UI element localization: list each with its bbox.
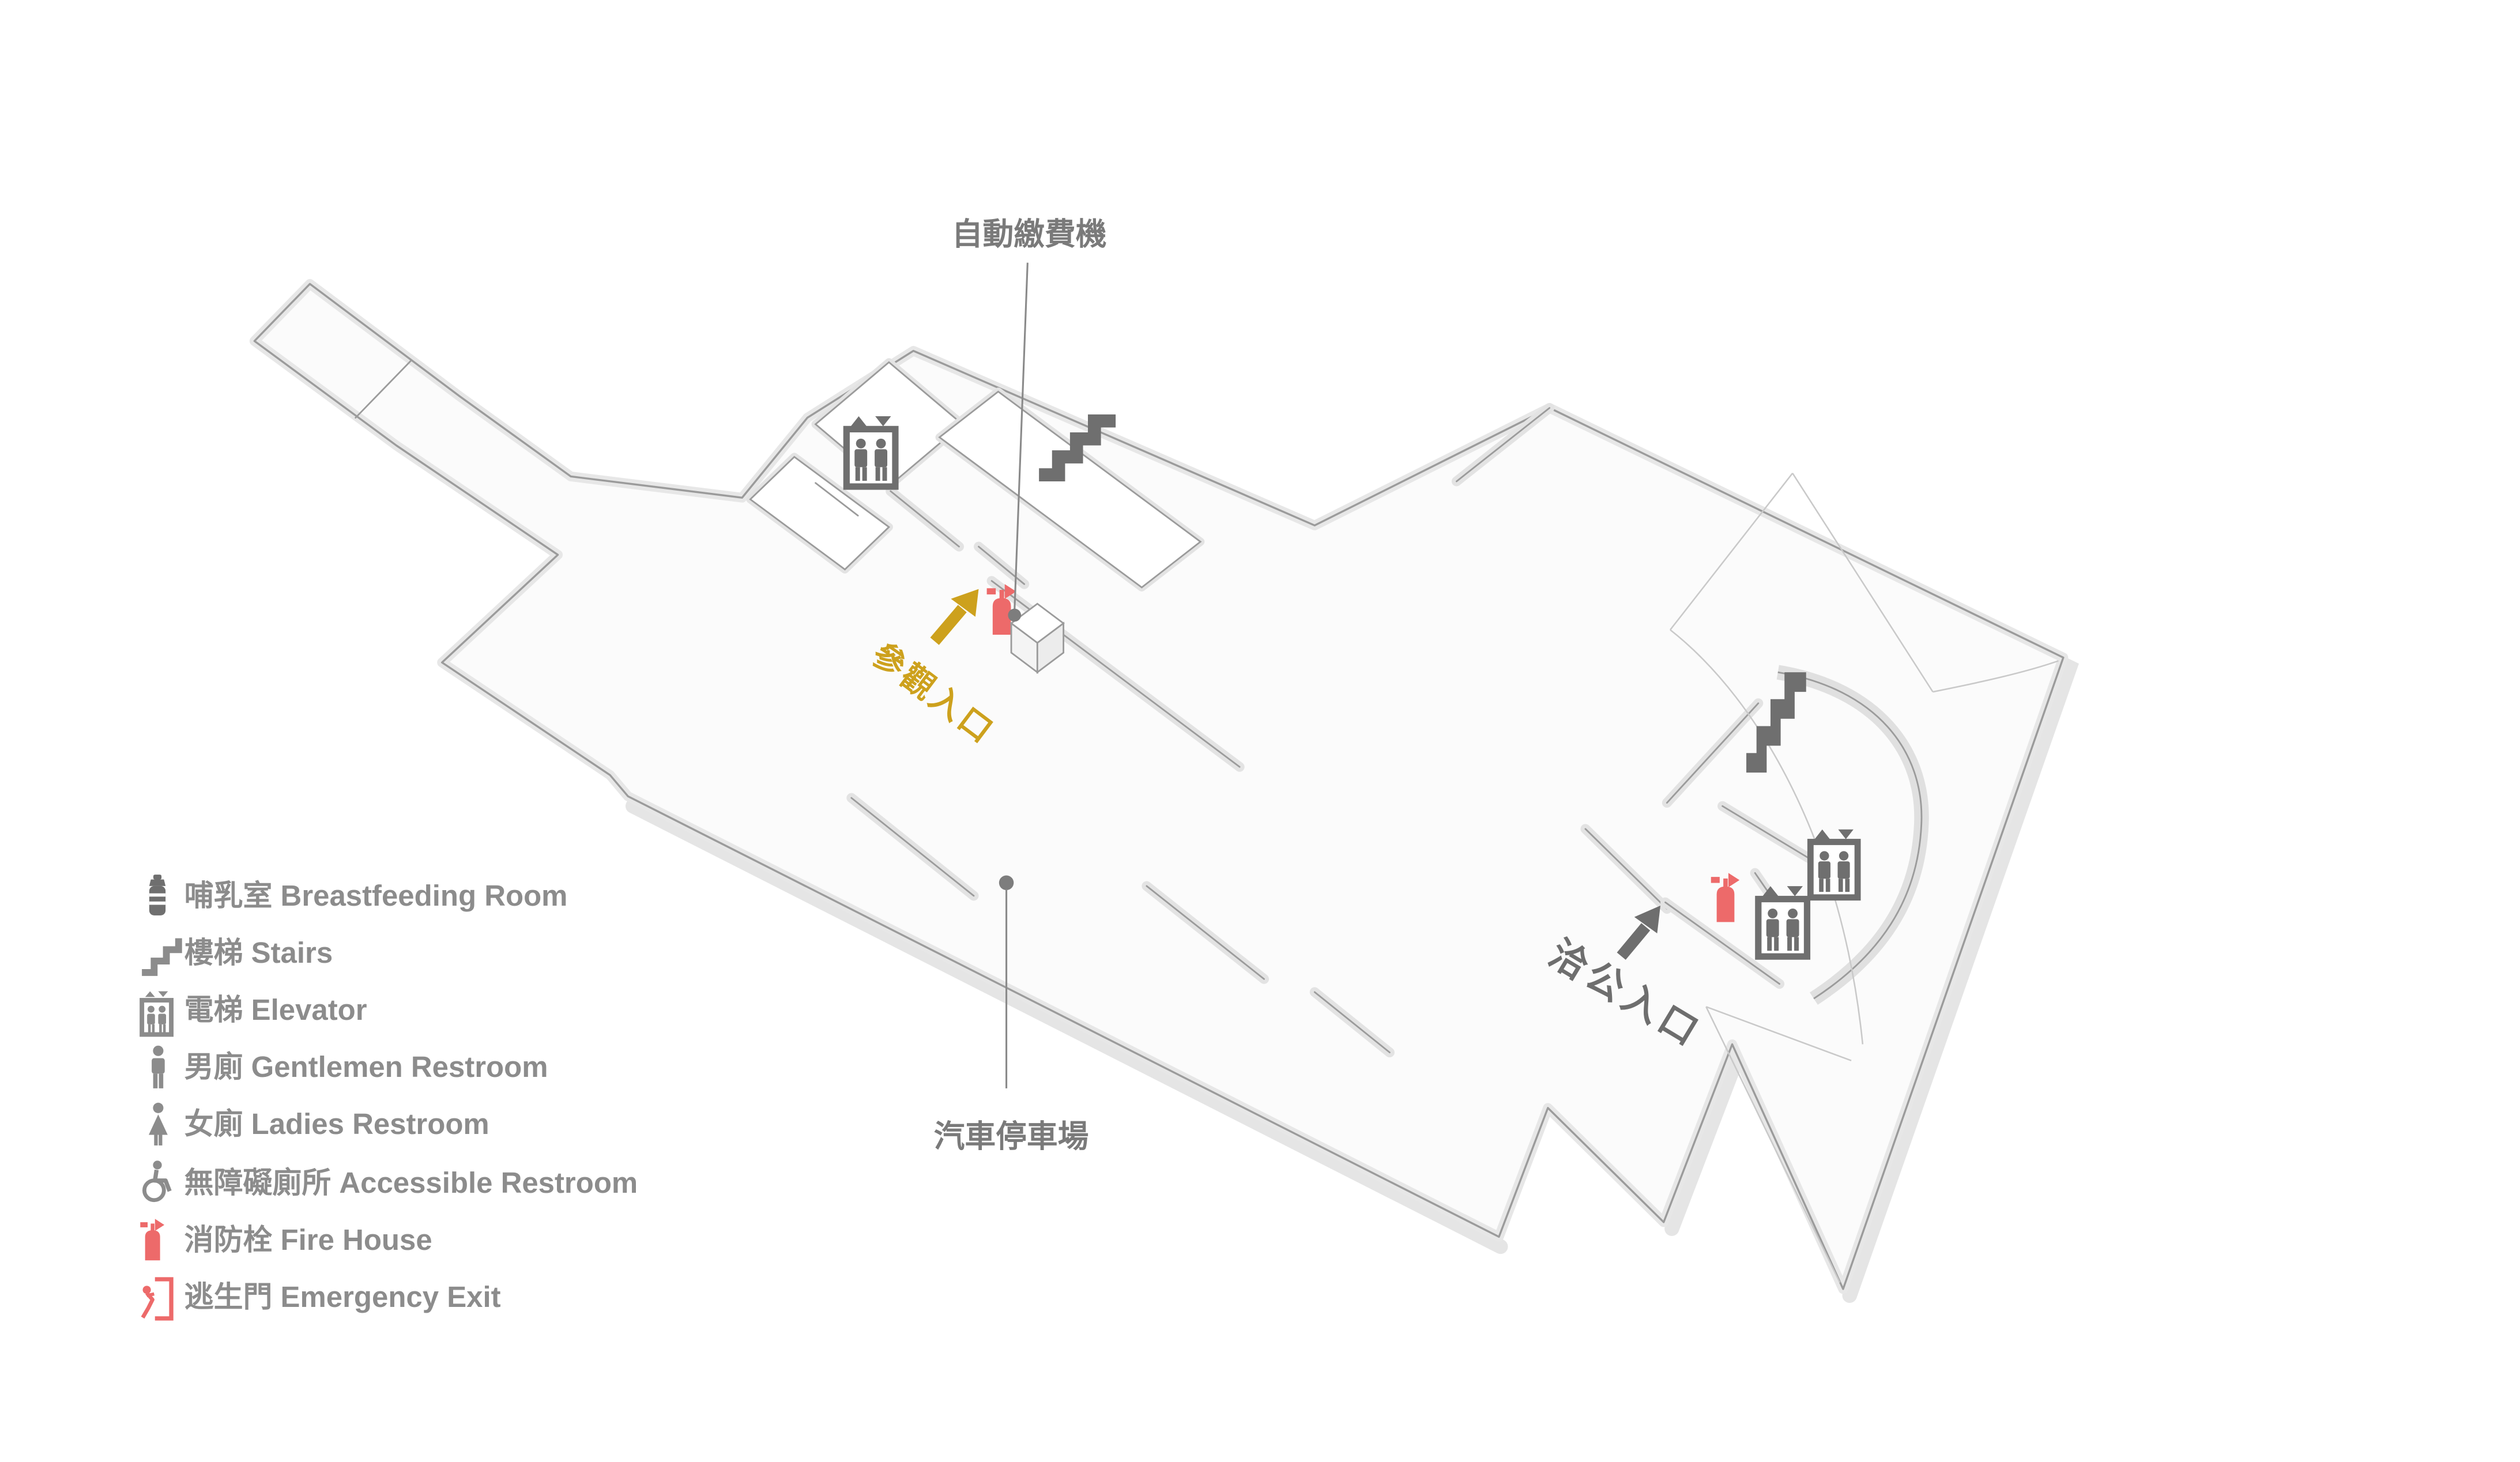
elevator-icon xyxy=(846,416,895,487)
parking-lot-label: 汽車停車場 xyxy=(934,1120,1089,1154)
legend-label: 消防栓 Fire House xyxy=(184,1223,432,1256)
breastfeeding-room-icon xyxy=(149,875,165,915)
legend-item-stairs: 樓梯 Stairs xyxy=(142,936,333,973)
payment-machine-label: 自動繳費機 xyxy=(952,217,1107,252)
legend-item-exit: 逃生門 Emergency Exit xyxy=(143,1279,501,1318)
legend-item-elevator: 電梯 Elevator xyxy=(142,991,367,1034)
legend-label: 無障礙廁所 Accessible Restroom xyxy=(184,1166,638,1199)
legend-label: 逃生門 Emergency Exit xyxy=(184,1280,501,1313)
parking-leader-dot xyxy=(999,875,1014,890)
elevator-icon xyxy=(1758,886,1807,956)
gentlemen-restroom-icon xyxy=(152,1046,165,1088)
legend-label: 樓梯 Stairs xyxy=(184,936,333,969)
legend-item-breastfeeding: 哺乳室 Breastfeeding Room xyxy=(149,875,568,915)
elevator-icon xyxy=(1810,830,1858,898)
legend-item-ladies: 女廁 Ladies Restroom xyxy=(149,1103,489,1146)
stairs-icon xyxy=(142,938,179,972)
legend-label: 女廁 Ladies Restroom xyxy=(184,1107,489,1140)
accessible-restroom-icon xyxy=(144,1160,169,1200)
legend: 哺乳室 Breastfeeding Room 樓梯 Stairs xyxy=(140,875,638,1318)
legend-label: 電梯 Elevator xyxy=(184,993,367,1026)
ladies-restroom-icon xyxy=(149,1103,168,1146)
legend-label: 哺乳室 Breastfeeding Room xyxy=(184,879,568,912)
fire-extinguisher-icon xyxy=(140,1219,164,1260)
legend-item-fire: 消防栓 Fire House xyxy=(140,1219,432,1260)
floor-plan: 自動繳費機 汽車停車場 參觀入口 洽公入口 xyxy=(254,217,2070,1296)
legend-label: 男廁 Gentlemen Restroom xyxy=(184,1050,548,1083)
floor-plan-canvas: 自動繳費機 汽車停車場 參觀入口 洽公入口 xyxy=(0,0,2520,1462)
emergency-exit-icon xyxy=(143,1279,172,1318)
elevator-icon xyxy=(142,991,171,1034)
legend-item-gentlemen: 男廁 Gentlemen Restroom xyxy=(152,1046,548,1088)
legend-item-accessible: 無障礙廁所 Accessible Restroom xyxy=(144,1160,638,1200)
payment-machine-leader-dot xyxy=(1008,609,1021,622)
